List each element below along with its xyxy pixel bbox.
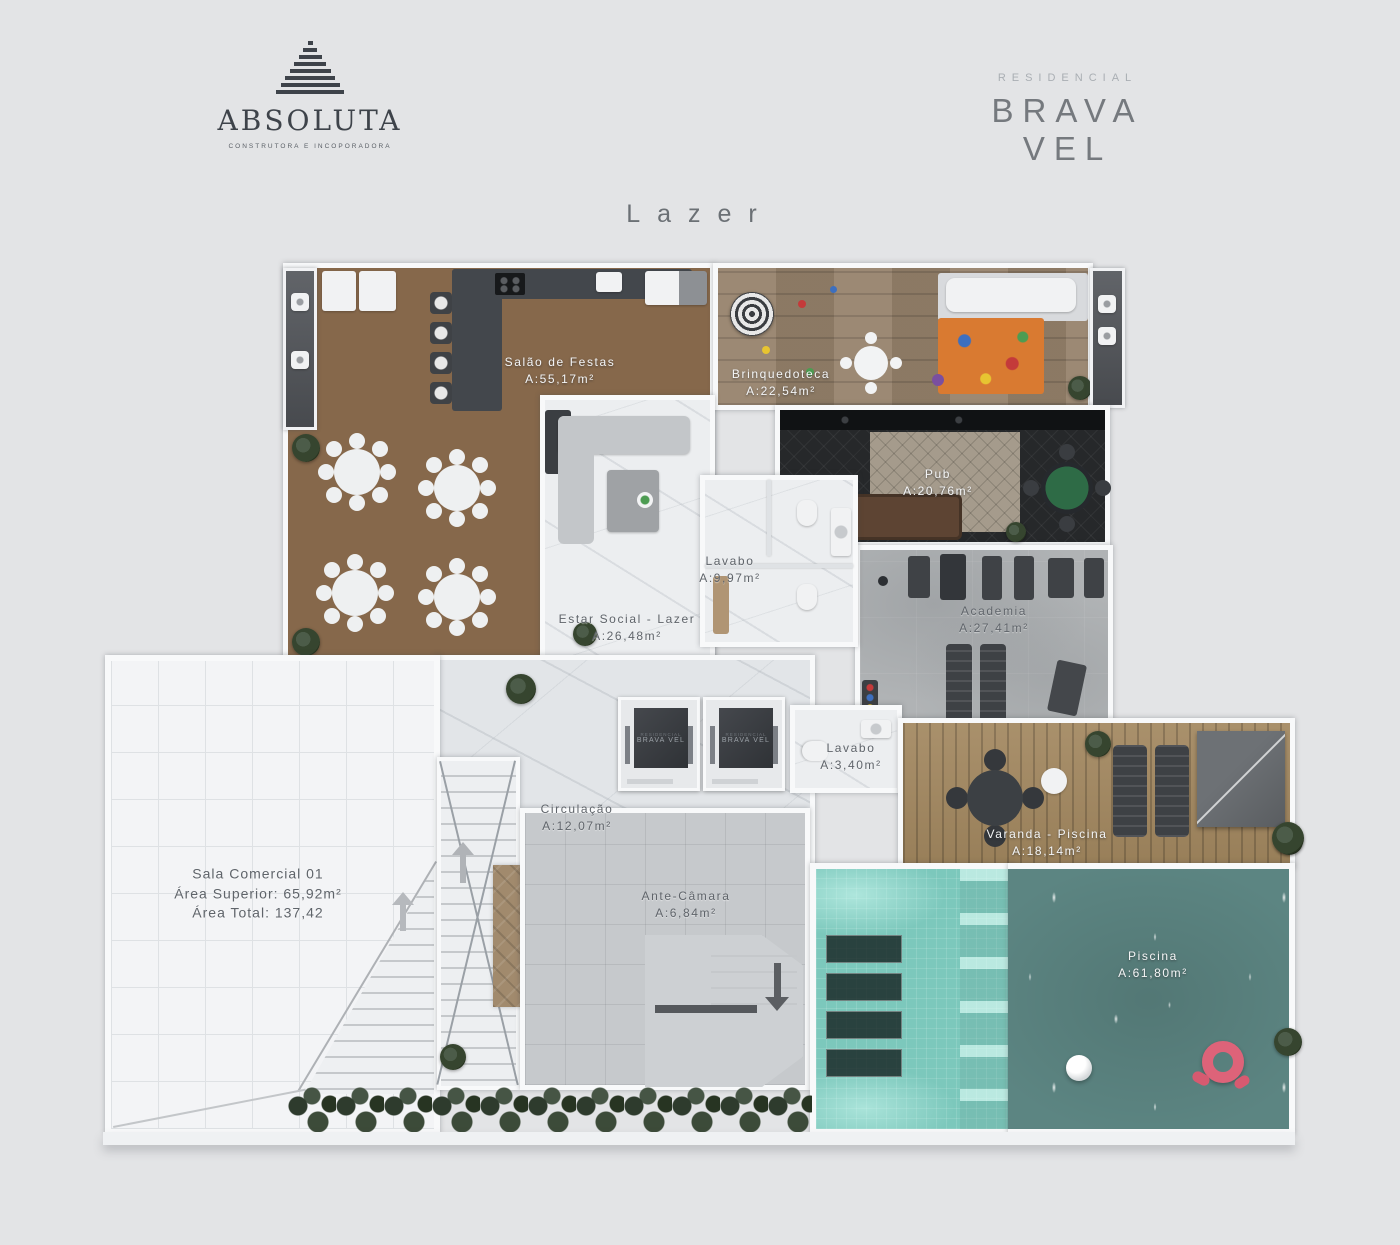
room-label-academia: Academia A:27,41m² [959, 603, 1029, 637]
room-name: Estar Social - Lazer [559, 611, 696, 628]
deck-table [967, 770, 1023, 826]
room-area: A:18,14m² [986, 843, 1107, 860]
room-label-varanda-piscina: Varanda - Piscina A:18,14m² [986, 826, 1107, 860]
toilet-icon [797, 584, 817, 610]
room-area-superior: Área Superior: 65,92m² [174, 884, 342, 904]
pool-shallow-area [810, 863, 1014, 1135]
dining-table [434, 465, 480, 511]
plant-icon [440, 1044, 466, 1070]
plant-icon [292, 628, 320, 656]
gym-machine [1048, 558, 1074, 598]
elevator-car: RESIDENCIAL BRAVA VEL [719, 708, 773, 768]
washbasin-icon [861, 720, 891, 738]
fridge [322, 271, 356, 311]
plant-icon [1068, 376, 1092, 400]
cabinet [359, 271, 396, 311]
room-area: A:12,07m² [541, 818, 614, 835]
room-label-lavabo-upper: Lavabo A:9,97m² [699, 553, 761, 587]
toy [762, 346, 770, 354]
gym-machine [1084, 558, 1104, 598]
bar-stool [430, 352, 452, 374]
elevator-brand-label: BRAVA VEL [722, 737, 770, 744]
gym-machine [908, 556, 930, 598]
room-name: Lavabo [699, 553, 761, 570]
toy [830, 286, 837, 293]
submerged-lounger [826, 935, 902, 963]
partition-wall [767, 480, 771, 556]
cooktop-icon [495, 273, 525, 295]
play-tent-icon [730, 292, 774, 336]
room-name: Lavabo [820, 740, 882, 757]
treadmill [946, 644, 972, 722]
room-area: A:6,84m² [642, 905, 731, 922]
room-area: A:20,76m² [903, 483, 973, 500]
room-ante-camara [520, 808, 810, 1090]
podium-base [103, 1132, 1295, 1145]
bar-stool [430, 322, 452, 344]
elevator-brand-label: BRAVA VEL [637, 737, 685, 744]
room-area-total: Área Total: 137,42 [174, 904, 342, 924]
room-name: Brinquedoteca [732, 366, 830, 383]
submerged-lounger [826, 973, 902, 1001]
room-name: Varanda - Piscina [986, 826, 1107, 843]
room-name: Ante-Câmara [642, 888, 731, 905]
elevator: RESIDENCIAL BRAVA VEL [703, 697, 785, 791]
floorplan: RESIDENCIAL BRAVA VEL RESIDENCIAL BRAVA … [0, 0, 1400, 1245]
bar-stool [430, 292, 452, 314]
toilet-icon [797, 500, 817, 526]
sun-lounger [1113, 745, 1147, 837]
up-arrow-icon [392, 892, 414, 931]
sun-lounger [1155, 745, 1189, 837]
elevator-sill [627, 779, 673, 784]
room-name: Sala Comercial 01 [174, 865, 342, 885]
stair-rail [655, 1005, 757, 1013]
counter-island [645, 271, 707, 305]
ac-unit-icon [291, 351, 309, 369]
up-arrow-icon [452, 842, 474, 883]
room-label-piscina: Piscina A:61,80m² [1118, 948, 1188, 982]
elevator: RESIDENCIAL BRAVA VEL [618, 697, 700, 791]
toy-ball [932, 374, 944, 386]
elevator-sill [712, 779, 758, 784]
ball-float [1066, 1055, 1092, 1081]
kids-table [854, 346, 888, 380]
room-area: A:55,17m² [505, 371, 616, 388]
gym-machine [1014, 556, 1034, 600]
bar-stool [430, 382, 452, 404]
plant-icon [292, 434, 320, 462]
gym-machine [1047, 659, 1087, 716]
kettlebell-icon [878, 576, 888, 586]
sofa-gray-side [558, 416, 594, 544]
plant-icon [1274, 1028, 1302, 1056]
dining-table [332, 570, 378, 616]
room-label-sala-comercial: Sala Comercial 01 Área Superior: 65,92m²… [174, 865, 342, 924]
dining-table [334, 449, 380, 495]
room-area: A:61,80m² [1118, 965, 1188, 982]
decor-bowl [637, 492, 653, 508]
treadmill [980, 644, 1006, 722]
bar-counter [780, 410, 1105, 430]
gym-machine [940, 554, 966, 600]
poker-table [1041, 462, 1093, 514]
balcony-right [1090, 268, 1125, 408]
submerged-lounger [826, 1011, 902, 1039]
elevator-rail [688, 726, 693, 764]
room-name: Academia [959, 603, 1029, 620]
play-rug [938, 318, 1044, 394]
sofa-white [946, 278, 1076, 312]
plant-icon [1006, 522, 1026, 542]
dining-table [434, 574, 480, 620]
toy [798, 300, 806, 308]
room-area: A:9,97m² [699, 570, 761, 587]
room-label-ante-camara: Ante-Câmara A:6,84m² [642, 888, 731, 922]
room-name: Piscina [1118, 948, 1188, 965]
room-name: Pub [903, 466, 973, 483]
leather-sofa [844, 494, 962, 540]
room-label-lavabo-lower: Lavabo A:3,40m² [820, 740, 882, 774]
pool-steps [960, 869, 1008, 1129]
room-name: Circulação [541, 801, 614, 818]
room-area: A:22,54m² [732, 383, 830, 400]
plant-icon [1272, 822, 1304, 854]
room-area: A:3,40m² [820, 757, 882, 774]
plant-icon [1085, 731, 1111, 757]
room-label-salao-de-festas: Salão de Festas A:55,17m² [505, 354, 616, 388]
plant-icon [506, 674, 536, 704]
room-label-brinquedoteca: Brinquedoteca A:22,54m² [732, 366, 830, 400]
room-area: A:26,48m² [559, 628, 696, 645]
room-label-pub: Pub A:20,76m² [903, 466, 973, 500]
ac-unit-icon [1098, 327, 1116, 345]
elevator-rail [625, 726, 630, 764]
room-label-estar-social: Estar Social - Lazer A:26,48m² [559, 611, 696, 645]
ac-unit-icon [291, 293, 309, 311]
elevator-rail [773, 726, 778, 764]
elevator-car: RESIDENCIAL BRAVA VEL [634, 708, 688, 768]
floorplan-page: { "brand": { "name": "ABSOLUTA", "taglin… [0, 0, 1400, 1245]
washbasin-icon [831, 508, 851, 556]
room-area: A:27,41m² [959, 620, 1029, 637]
gym-machine [982, 556, 1002, 600]
down-arrow-icon [765, 963, 789, 1011]
balcony-left [283, 268, 317, 430]
cabana [1197, 731, 1285, 827]
ac-unit-icon [1098, 295, 1116, 313]
submerged-lounger [826, 1049, 902, 1077]
elevator-rail [710, 726, 715, 764]
sink-icon [596, 272, 622, 292]
room-label-circulacao: Circulação A:12,07m² [541, 801, 614, 835]
pool-deep-area [1008, 863, 1295, 1135]
side-table [1041, 768, 1067, 794]
room-name: Salão de Festas [505, 354, 616, 371]
